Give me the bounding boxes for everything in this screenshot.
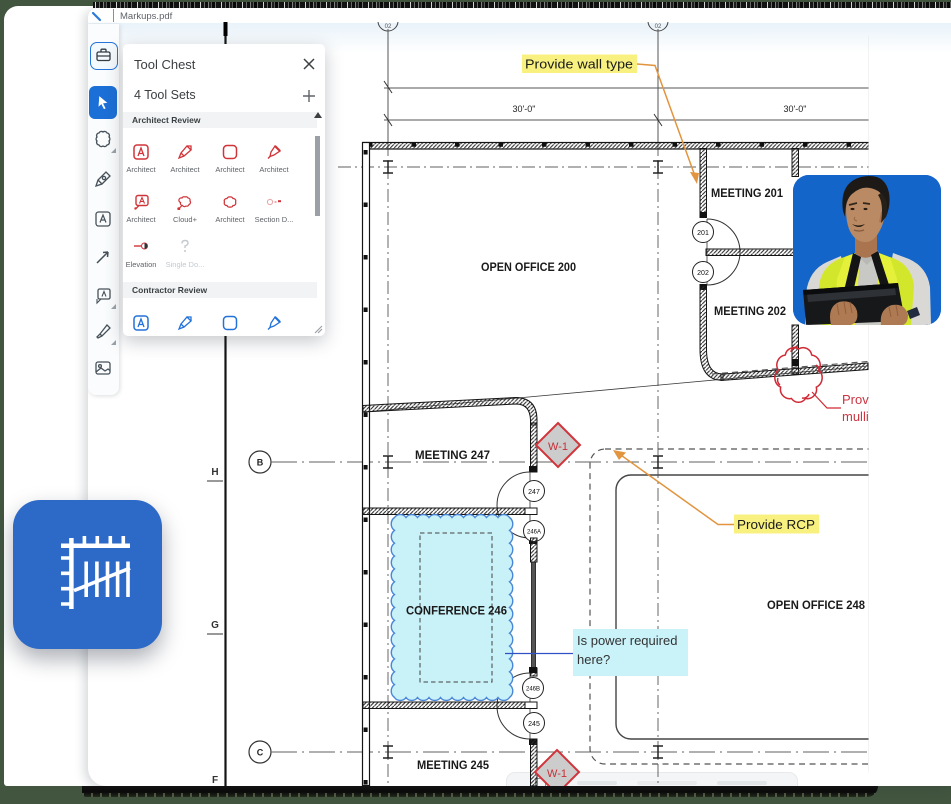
svg-text:mullion: mullion [842, 409, 883, 424]
svg-text:246B: 246B [526, 687, 540, 693]
svg-text:Provide: Provide [842, 392, 886, 407]
svg-text:30'-0": 30'-0" [513, 104, 536, 114]
svg-text:G: G [211, 620, 219, 631]
svg-text:MEETING 202: MEETING 202 [714, 304, 786, 318]
svg-text:here?: here? [577, 652, 610, 667]
svg-text:30'-0": 30'-0" [784, 104, 807, 114]
svg-text:MEETING 245: MEETING 245 [417, 758, 489, 772]
svg-text:MEETING 247: MEETING 247 [415, 448, 490, 462]
svg-text:MEETING 201: MEETING 201 [711, 186, 783, 200]
svg-text:B: B [257, 458, 264, 468]
svg-text:Is power required: Is power required [577, 633, 677, 648]
svg-text:246A: 246A [527, 530, 541, 536]
svg-text:OPEN OFFICE 200: OPEN OFFICE 200 [481, 260, 576, 274]
svg-text:H: H [211, 467, 218, 478]
svg-text:Provide wall type: Provide wall type [525, 57, 633, 72]
svg-text:247: 247 [528, 489, 540, 496]
svg-text:Provide RCP: Provide RCP [737, 517, 815, 532]
svg-text:F: F [212, 775, 218, 786]
svg-text:W-1: W-1 [547, 768, 567, 780]
svg-text:OPEN OFFICE 248: OPEN OFFICE 248 [767, 598, 865, 612]
svg-text:202: 202 [697, 270, 709, 277]
svg-text:201: 201 [697, 230, 709, 237]
svg-text:CONFERENCE 246: CONFERENCE 246 [406, 604, 507, 618]
svg-text:245: 245 [528, 721, 540, 728]
svg-text:W-1: W-1 [548, 441, 568, 453]
svg-text:C: C [257, 748, 264, 758]
